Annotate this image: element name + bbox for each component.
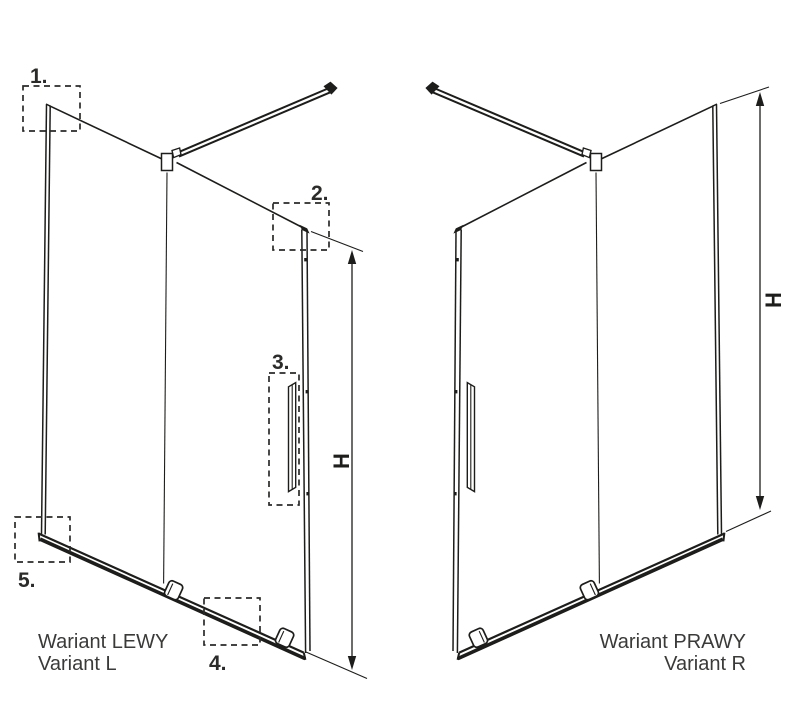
shower-door-variants-diagram: 1. 2. 3. 4. 5. H Wariant LEWY Variant L … — [0, 0, 800, 708]
height-dimension-right: H — [720, 87, 786, 532]
technical-drawing: 1. 2. 3. 4. 5. H Wariant LEWY Variant L … — [0, 0, 800, 708]
extension-line-bottom — [726, 511, 771, 532]
diagram-variant-left: 1. 2. 3. 4. 5. H Wariant LEWY Variant L — [15, 65, 367, 679]
height-dimension-left: H — [306, 232, 367, 679]
caption-variant-right-en: Variant R — [664, 653, 746, 675]
shower-structure-left — [39, 82, 338, 660]
extension-line-top — [311, 232, 363, 252]
dimension-label-h-right: H — [761, 292, 786, 308]
shower-structure-right — [425, 82, 724, 660]
arrow-down-icon — [348, 656, 356, 670]
caption-variant-right-pl: Wariant PRAWY — [600, 631, 746, 653]
callout-label-4: 4. — [209, 652, 227, 675]
callout-label-3: 3. — [272, 351, 290, 374]
arrow-up-icon — [348, 250, 356, 264]
arrow-down-icon — [756, 496, 764, 510]
callout-label-1: 1. — [30, 65, 48, 88]
caption-variant-left-en: Variant L — [38, 653, 117, 675]
callout-box-1 — [23, 86, 80, 131]
caption-variant-left-pl: Wariant LEWY — [38, 631, 168, 653]
callout-label-5: 5. — [18, 569, 36, 592]
extension-line-bottom — [306, 652, 367, 679]
callout-label-2: 2. — [311, 182, 329, 205]
diagram-variant-right: H Wariant PRAWY Variant R — [425, 82, 786, 675]
dimension-label-h-left: H — [329, 453, 354, 469]
arrow-up-icon — [756, 92, 764, 106]
